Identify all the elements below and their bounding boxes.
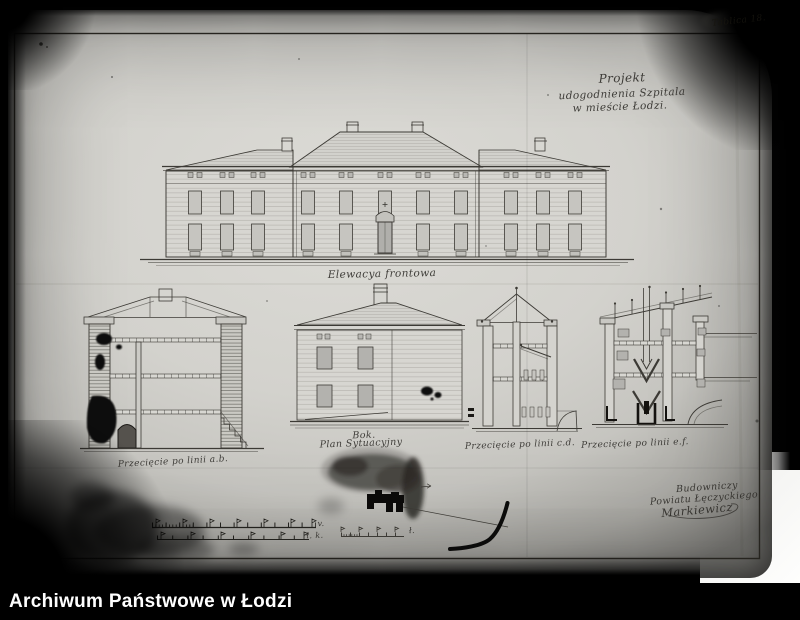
scale1-end-mark: v. bbox=[317, 519, 324, 528]
site-scale-end-mark: ł. bbox=[409, 526, 415, 535]
section-ef-drawing bbox=[592, 285, 757, 428]
scale2-end-mark: ł. k. bbox=[306, 531, 323, 541]
section-ab-drawing bbox=[80, 289, 264, 452]
title-line-1: Projekt bbox=[598, 70, 645, 86]
archive-caption-bar: Archiwum Państwowe w Łodzi bbox=[0, 583, 800, 620]
archive-caption-text: Archiwum Państwowe w Łodzi bbox=[9, 591, 292, 613]
side-elevation-drawing bbox=[290, 284, 469, 428]
caption-front-elevation: Elewacya frontowa bbox=[328, 267, 437, 281]
scanned-archive-page: Tablica 18. Projekt udogodnienia Szpital… bbox=[0, 0, 800, 620]
front-elevation-drawing bbox=[140, 122, 634, 266]
section-cd-drawing bbox=[468, 287, 582, 432]
river-line bbox=[450, 503, 508, 549]
